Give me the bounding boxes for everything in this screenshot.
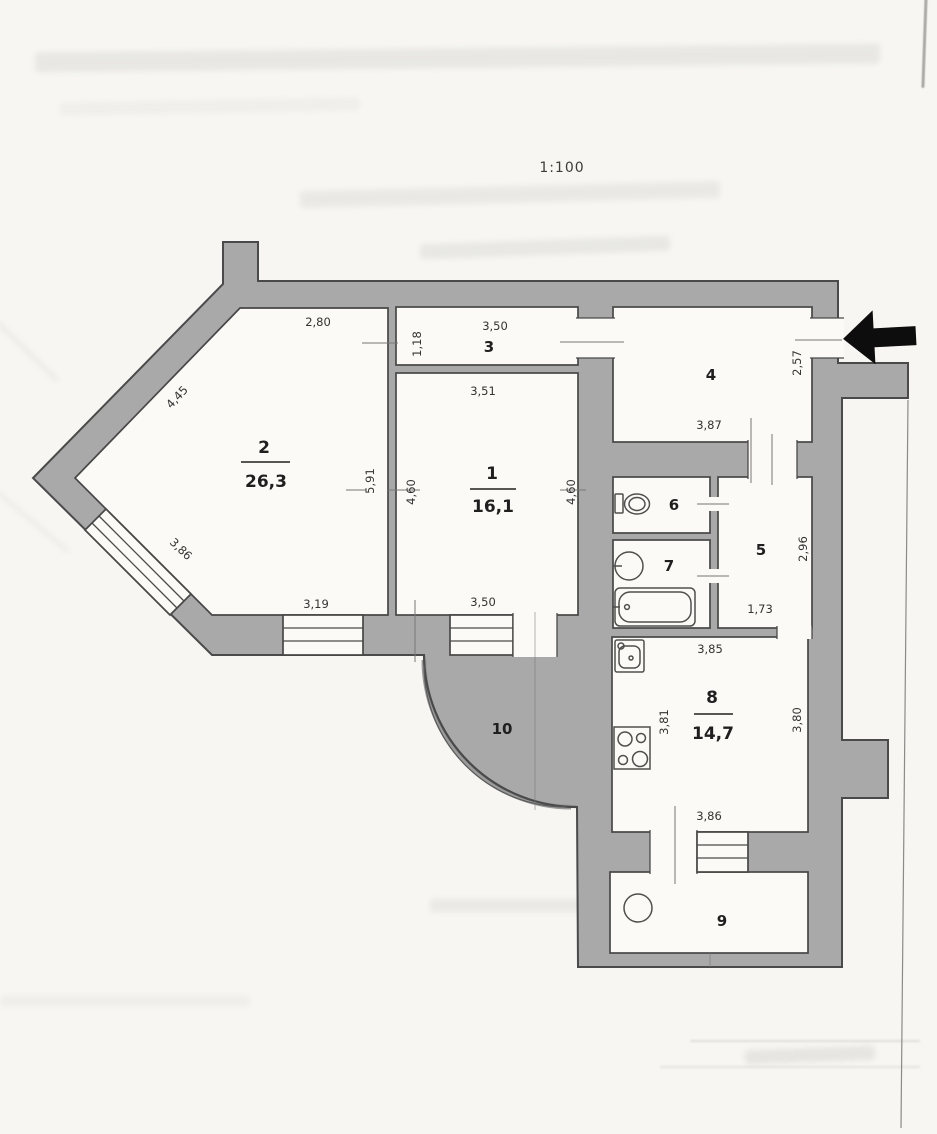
room-7-number: 7 [664,557,674,575]
dim-room1-height-left: 4,60 [404,479,418,505]
page-edge-line [901,400,908,1128]
dim-room1-width-bottom: 3,50 [470,595,496,609]
door-opening [748,434,797,485]
dim-room5-height: 2,96 [796,536,810,562]
room-4-number: 4 [706,366,716,384]
floor-plan-drawing: 1 16,1 2 26,3 3 4 5 6 7 8 14,7 9 10 2,80… [0,0,937,1134]
room-9-number: 9 [717,912,727,930]
dim-room3-height: 1,18 [410,331,424,357]
door-opening [777,626,812,639]
room-2-number: 2 [258,438,270,458]
room-1-area: 16,1 [472,497,514,517]
room-6 [613,477,710,533]
dim-room2-window: 3,19 [303,597,329,611]
room-6-number: 6 [669,496,679,514]
dim-room5-width: 1,73 [747,602,773,616]
room-8-area: 14,7 [692,724,734,744]
dim-kitchen-bottom: 3,86 [696,809,722,823]
dim-kitchen-top: 3,85 [697,642,723,656]
entrance-arrow-icon [842,308,918,366]
dim-room4-width: 3,87 [696,418,722,432]
dim-room4-height: 2,57 [790,350,804,376]
room-1-number: 1 [486,464,498,484]
dim-room3-width: 3,50 [482,319,508,333]
dim-kitchen-left: 3,81 [657,709,671,735]
window [283,615,363,655]
window [450,615,513,655]
dim-room2-height: 5,91 [363,468,377,494]
window [697,832,748,872]
dim-kitchen-right: 3,80 [790,707,804,733]
dim-room1-width-top: 3,51 [470,384,496,398]
room-3-number: 3 [484,338,494,356]
door-opening [650,830,697,874]
room-8-number: 8 [706,688,718,708]
room-9 [610,872,808,953]
room-10-number: 10 [492,720,513,738]
dim-room2-top: 2,80 [305,315,331,329]
dim-room1-height-right: 4,60 [564,479,578,505]
room-2 [75,308,388,615]
room-1 [396,373,578,615]
scanned-floor-plan-page: 1:100 [0,0,937,1134]
room-2-area: 26,3 [245,472,287,492]
room-5-number: 5 [756,541,766,559]
